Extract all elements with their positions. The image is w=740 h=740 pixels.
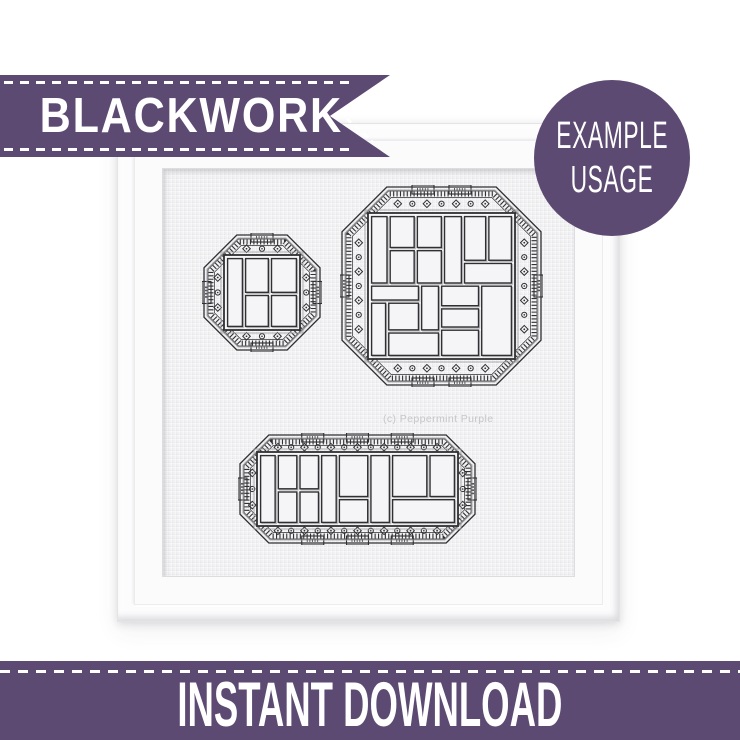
- banner-title-text: INSTANT DOWNLOAD: [178, 669, 563, 740]
- pattern-cells: [228, 259, 298, 328]
- blackwork-pattern-svg-wide-rect: [238, 433, 477, 545]
- blackwork-pattern-svg-small-square: [202, 233, 322, 352]
- blackwork-pattern-svg-large-square: [340, 185, 543, 387]
- pattern-cells: [372, 217, 513, 357]
- pattern-cells: [261, 456, 456, 524]
- badge-line-1-text: EXAMPLE: [556, 114, 668, 158]
- example-usage-badge: EXAMPLE USAGE: [534, 80, 690, 236]
- badge-line-2: USAGE: [543, 158, 681, 202]
- blackwork-pattern-large-square: [340, 185, 543, 392]
- ribbon-title-text: BLACKWORK: [39, 88, 342, 144]
- blackwork-pattern-wide-rect: [238, 433, 477, 550]
- aida-fabric: (c) Peppermint Purple: [162, 168, 575, 577]
- watermark: (c) Peppermint Purple: [383, 413, 494, 425]
- blackwork-ribbon: BLACKWORK: [0, 75, 390, 157]
- instant-download-banner: INSTANT DOWNLOAD: [0, 661, 740, 740]
- ribbon-title: BLACKWORK: [0, 75, 382, 157]
- banner-title: INSTANT DOWNLOAD: [0, 672, 740, 738]
- badge-line-1: EXAMPLE: [519, 114, 706, 158]
- blackwork-pattern-small-square: [202, 233, 322, 357]
- frame-mat: (c) Peppermint Purple: [134, 140, 603, 605]
- product-image: (c) Peppermint Purple BLACKWORK EXAMPLE …: [0, 0, 740, 740]
- badge-line-2-text: USAGE: [571, 158, 654, 202]
